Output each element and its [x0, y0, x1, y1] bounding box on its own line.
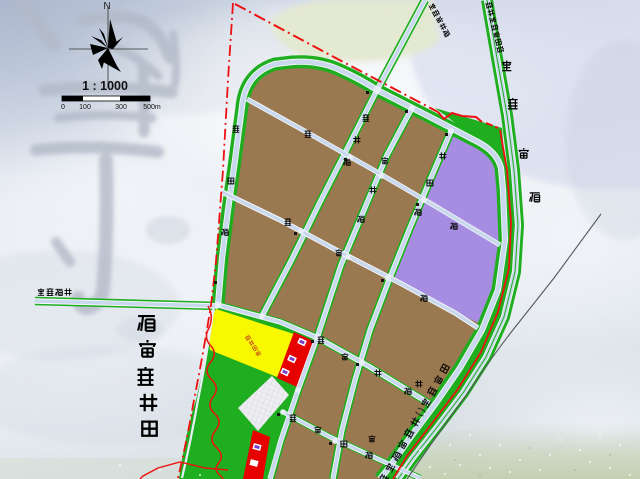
svg-text:500m: 500m — [143, 104, 161, 111]
svg-text:100: 100 — [79, 104, 91, 111]
svg-text:N: N — [103, 1, 110, 12]
svg-text:1 : 1000: 1 : 1000 — [82, 79, 128, 93]
svg-text:300: 300 — [115, 104, 127, 111]
svg-text:0: 0 — [61, 104, 65, 111]
